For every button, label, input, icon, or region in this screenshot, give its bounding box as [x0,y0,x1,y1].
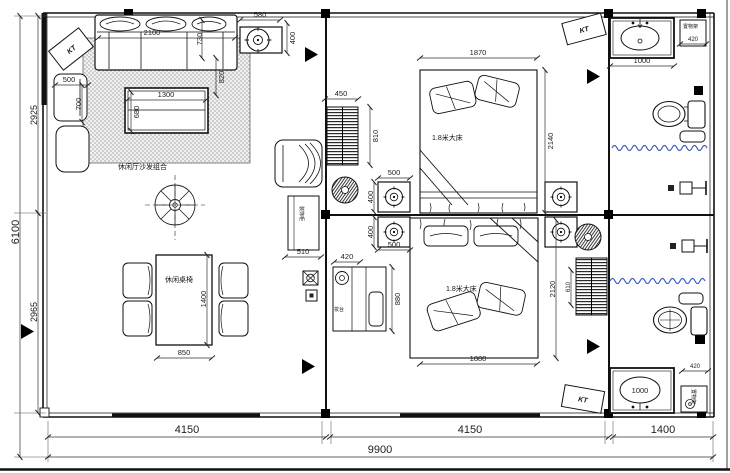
dim: 610 [566,281,572,292]
window-bottom-bedroom [400,414,540,418]
shower-head-bottom [670,239,707,253]
decor-cabinet [288,196,319,250]
shelf-top-label: 置物架 [683,23,698,30]
arrow-icon [302,359,315,374]
bed2-label: 1.8米大床 [446,284,477,293]
dim: 580 [254,10,267,19]
dim: 2100 [144,28,161,37]
dim: 730 [195,33,204,46]
nightstand-right-2 [545,217,577,247]
arrow-icon [587,69,600,84]
dim: 400 [288,32,297,45]
shower-curtain-bottom [610,279,705,284]
dim: 4150 [175,424,199,436]
speaker-box [240,27,282,54]
dim: 700 [74,98,83,111]
bedroom-1: 1.8米大床 [327,70,577,213]
sofa-group-label: 休闲厅沙发组合 [118,162,167,171]
toilet-top [653,101,705,142]
dim: 9900 [368,444,392,456]
window-bottom-living [112,414,260,418]
dim: 2925 [29,105,39,125]
dining-chair [123,301,152,336]
dim: 2140 [546,133,555,150]
dim: 680 [132,106,141,119]
corner-post [40,408,49,417]
dresser-stool [369,292,383,326]
radiator-grille-1 [327,107,358,165]
dim: 500 [388,168,401,177]
dim: 880 [393,293,402,306]
ac-unit-kt-bottom: KT [561,385,604,414]
bathroom-bottom: 1000 置物架 [610,239,707,413]
toilet-tank [691,307,707,335]
fan-hub [585,234,592,241]
cabinet-label: 装饰柜 [298,206,305,221]
arrow-icon [305,47,318,62]
dim-vanity-bottom: 1000 [632,386,649,395]
wall-thick-segment [42,13,47,105]
fan-hub [342,187,349,194]
dining-chair [219,301,248,336]
ceiling-fan-light [145,175,205,240]
living-room: KT 休闲厅沙发组合 休闲桌椅 [49,15,282,345]
radiator-grille-2 [576,258,607,315]
dim: 2120 [548,281,557,298]
dim: 400 [366,226,375,239]
dim: 820 [217,71,226,84]
dim: 1870 [470,48,487,57]
dim: 2965 [29,302,39,322]
arrow-icon [587,339,600,354]
dim: 1300 [158,90,175,99]
dim: 6100 [10,220,22,244]
dim: 1880 [470,354,487,363]
dining-set-label: 休闲桌椅 [165,275,193,284]
dining-set [123,255,248,345]
switch-symbols [303,271,318,301]
nightstand-left-1 [378,182,410,212]
dim: 510 [297,247,310,256]
dim: 1400 [199,291,208,308]
toilet-bottom [654,293,708,335]
dim: 1400 [651,424,675,436]
dining-chair [219,263,248,298]
dim: 1000 [634,56,651,65]
dim: 450 [335,89,348,98]
dim: 850 [178,348,191,357]
dresser [333,267,386,331]
ac-unit-kt-top: KT [562,13,606,45]
dim: 420 [341,252,354,261]
floor-plan-canvas: KT 休闲厅沙发组合 休闲桌椅 装饰柜 [0,0,730,473]
shower-curtain-top [612,146,707,151]
dim: 420 [690,364,701,370]
bed1-label: 1.8米大床 [432,133,463,142]
shower-head-top [668,181,706,195]
toilet-mat [680,131,705,142]
dim: 400 [366,191,375,204]
bathroom-top: 置物架 [610,18,707,195]
dim: 500 [388,240,401,249]
arrow-icon [21,324,34,339]
dim: 500 [63,75,76,84]
nightstand-right-1 [545,182,577,212]
toilet-tank [688,101,705,128]
armchair [275,140,322,187]
shelf-bottom-label: 置物架 [690,389,697,404]
dresser-label: 妆台 [334,306,344,313]
dim: 810 [371,130,380,143]
dim: 420 [688,37,699,43]
hallway: 装饰柜 [275,140,322,301]
vanity-sink-top [610,18,674,58]
toilet-mat [679,293,703,304]
dim: 4150 [458,424,482,436]
shelf-bottom: 置物架 [681,386,707,412]
floor-plan: KT 休闲厅沙发组合 休闲桌椅 装饰柜 [0,0,730,473]
dining-chair [123,263,152,298]
